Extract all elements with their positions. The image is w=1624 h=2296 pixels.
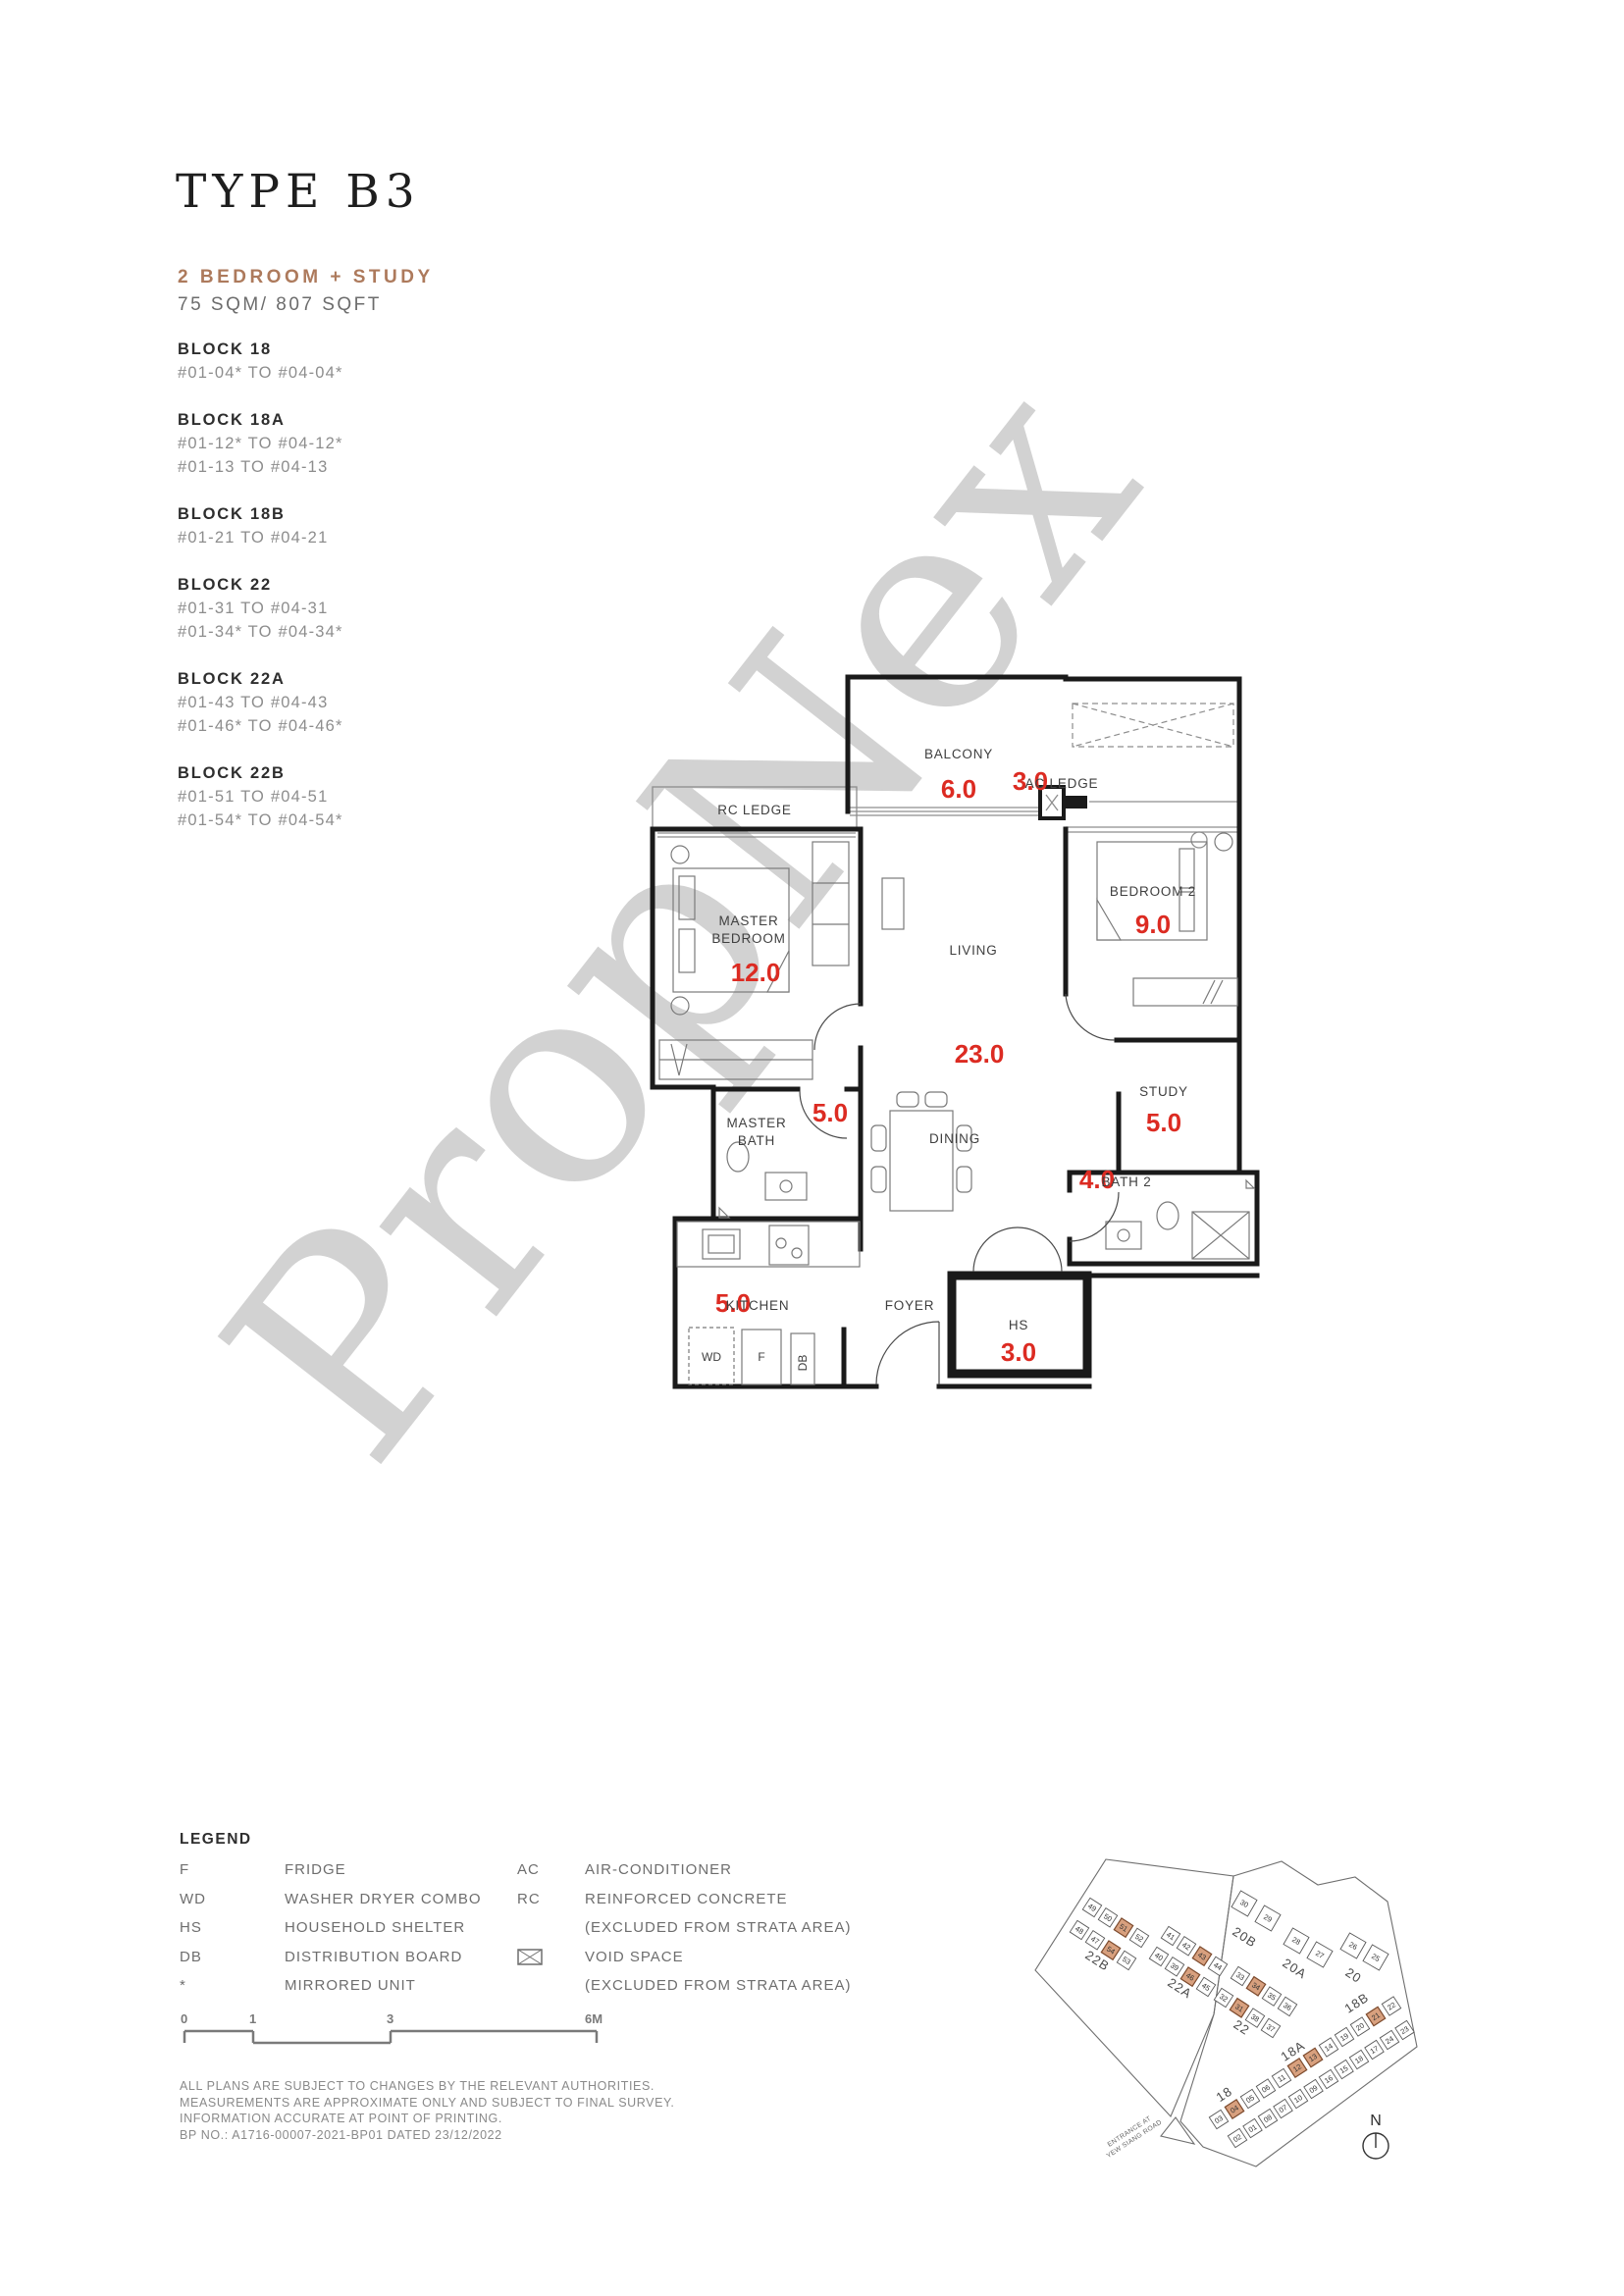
- site-unit: 03: [1209, 2110, 1228, 2128]
- site-unit: 02: [1228, 2128, 1246, 2147]
- scale-bar: 0 1 3 6M: [175, 2009, 626, 2053]
- unit-type-subtitle: 2 BEDROOM + STUDY: [178, 267, 434, 288]
- block-item: BLOCK 22B#01-51 TO #04-51#01-54* TO #04-…: [178, 761, 501, 832]
- site-key-plan: 4950515248475453414243444039464533343536…: [1021, 1854, 1482, 2247]
- site-unit: 50: [1098, 1908, 1117, 1927]
- site-unit: 17: [1365, 2040, 1384, 2059]
- block-item: BLOCK 18A#01-12* TO #04-12*#01-13 TO #04…: [178, 408, 501, 479]
- site-unit: 28: [1283, 1928, 1309, 1954]
- disclaimer-line: BP NO.: A1716-00007-2021-BP01 DATED 23/1…: [180, 2127, 674, 2144]
- site-unit: 44: [1208, 1957, 1227, 1975]
- site-unit: 14: [1319, 2038, 1337, 2057]
- site-unit: 53: [1117, 1951, 1135, 1969]
- legend-symbol: AC: [517, 1855, 585, 1885]
- appliances: WD F DB: [689, 1328, 814, 1384]
- block-range: #01-46* TO #04-46*: [178, 714, 501, 738]
- legend-desc: (EXCLUDED FROM STRATA AREA): [585, 1971, 909, 2001]
- site-unit: 18: [1349, 2050, 1368, 2068]
- wd-label: WD: [702, 1350, 721, 1364]
- disclaimer-line: MEASUREMENTS ARE APPROXIMATE ONLY AND SU…: [180, 2095, 674, 2112]
- block-range: #01-04* TO #04-04*: [178, 361, 501, 385]
- block-item: BLOCK 22A#01-43 TO #04-43#01-46* TO #04-…: [178, 667, 501, 738]
- site-unit: 33: [1231, 1966, 1249, 1985]
- site-unit: 49: [1082, 1898, 1101, 1916]
- room-label-balcony: BALCONY: [924, 747, 993, 761]
- disclaimer: ALL PLANS ARE SUBJECT TO CHANGES BY THE …: [180, 2078, 674, 2143]
- site-unit: 09: [1304, 2079, 1323, 2098]
- legend: LEGEND F FRIDGE AC AIR-CONDITIONER WD WA…: [180, 1831, 909, 2001]
- block-range: #01-13 TO #04-13: [178, 455, 501, 479]
- area-master-bedroom: 12.0: [731, 958, 781, 987]
- room-label-master-bath-1: MASTER: [726, 1116, 786, 1130]
- site-unit: 40: [1149, 1947, 1168, 1965]
- block-name: BLOCK 18A: [178, 408, 501, 432]
- room-label-rc-ledge: RC LEDGE: [717, 803, 791, 817]
- legend-symbol: WD: [180, 1885, 285, 1914]
- area-master-bath: 5.0: [812, 1098, 848, 1127]
- room-label-living: LIVING: [949, 943, 997, 958]
- area-hs: 3.0: [1001, 1337, 1036, 1367]
- block-range: #01-31 TO #04-31: [178, 597, 501, 620]
- fridge-label: F: [758, 1350, 764, 1364]
- legend-title: LEGEND: [180, 1831, 909, 1849]
- block-list: BLOCK 18#01-04* TO #04-04* BLOCK 18A#01-…: [178, 338, 501, 856]
- site-unit: 24: [1380, 2030, 1398, 2049]
- legend-symbol: *: [180, 1971, 285, 2001]
- site-block-label: 18A: [1279, 2038, 1308, 2064]
- site-unit: 22: [1382, 1997, 1400, 2015]
- site-block-label: 18: [1214, 2083, 1235, 2105]
- site-unit: 15: [1335, 2060, 1353, 2078]
- site-unit: 06: [1256, 2079, 1275, 2098]
- scale-tick-6m: 6M: [585, 2011, 602, 2026]
- room-label-ac-ledge: AC LEDGE: [1025, 776, 1099, 791]
- room-label-dining: DINING: [929, 1131, 980, 1146]
- legend-symbol: HS: [180, 1913, 285, 1943]
- room-label-bath2: BATH 2: [1101, 1174, 1151, 1189]
- legend-symbol: DB: [180, 1943, 285, 1972]
- legend-desc: DISTRIBUTION BOARD: [285, 1943, 517, 1972]
- site-unit: 01: [1243, 2118, 1262, 2137]
- block-range: #01-54* TO #04-54*: [178, 809, 501, 832]
- site-unit: 19: [1335, 2027, 1353, 2046]
- site-unit: 41: [1161, 1926, 1179, 1945]
- block-range: #01-43 TO #04-43: [178, 691, 501, 714]
- room-label-hs: HS: [1009, 1318, 1028, 1332]
- area-balcony: 6.0: [941, 774, 976, 804]
- site-unit: 10: [1288, 2089, 1307, 2108]
- disclaimer-line: ALL PLANS ARE SUBJECT TO CHANGES BY THE …: [180, 2078, 674, 2095]
- legend-desc: HOUSEHOLD SHELTER: [285, 1913, 517, 1943]
- legend-desc: AIR-CONDITIONER: [585, 1855, 909, 1885]
- room-label-master-bedroom-2: BEDROOM: [711, 931, 785, 946]
- block-range: #01-51 TO #04-51: [178, 785, 501, 809]
- site-block-label: 20A: [1280, 1956, 1309, 1982]
- void-space-icon: [517, 1943, 585, 1972]
- room-label-foyer: FOYER: [885, 1298, 935, 1313]
- site-block-label: 20B: [1230, 1924, 1259, 1951]
- site-unit: 48: [1070, 1920, 1088, 1939]
- north-arrow-icon: N: [1363, 2113, 1388, 2159]
- site-unit: 47: [1085, 1931, 1104, 1950]
- legend-desc: REINFORCED CONCRETE: [585, 1885, 909, 1914]
- block-name: BLOCK 18: [178, 338, 501, 361]
- site-unit: 27: [1307, 1942, 1333, 1967]
- site-unit: 23: [1395, 2020, 1414, 2039]
- site-unit: 42: [1177, 1937, 1195, 1956]
- site-unit: 25: [1363, 1945, 1388, 1970]
- site-unit: 35: [1262, 1987, 1281, 2006]
- room-label-kitchen: KITCHEN: [726, 1298, 790, 1313]
- site-unit: 21: [1366, 2007, 1385, 2025]
- site-unit: 04: [1225, 2100, 1243, 2118]
- site-unit: 34: [1246, 1977, 1265, 1996]
- site-unit: 20: [1350, 2017, 1369, 2036]
- area-bedroom2: 9.0: [1135, 910, 1171, 939]
- site-unit: 30: [1231, 1891, 1257, 1916]
- site-unit: 08: [1258, 2109, 1277, 2127]
- site-block-label: 18B: [1342, 1990, 1372, 2016]
- block-name: BLOCK 22B: [178, 761, 501, 785]
- block-item: BLOCK 18B#01-21 TO #04-21: [178, 502, 501, 549]
- page-title: TYPE B3: [176, 165, 421, 219]
- legend-desc: MIRRORED UNIT: [285, 1971, 517, 2001]
- area-study: 5.0: [1146, 1108, 1181, 1137]
- site-unit: 11: [1272, 2068, 1290, 2087]
- disclaimer-line: INFORMATION ACCURATE AT POINT OF PRINTIN…: [180, 2111, 674, 2127]
- site-unit: 37: [1261, 2018, 1280, 2037]
- block-range: #01-34* TO #04-34*: [178, 620, 501, 644]
- site-block-label: 20: [1342, 1964, 1364, 1986]
- block-item: BLOCK 22#01-31 TO #04-31#01-34* TO #04-3…: [178, 573, 501, 644]
- site-unit: 29: [1255, 1905, 1281, 1931]
- site-unit: 16: [1319, 2069, 1337, 2088]
- site-unit: 26: [1340, 1933, 1366, 1958]
- site-unit: 39: [1165, 1957, 1183, 1976]
- legend-desc: VOID SPACE: [585, 1943, 909, 1972]
- entrance-arrow-icon: ENTRANCE AT YEW SIANG ROAD: [1101, 2112, 1194, 2160]
- room-label-bedroom2: BEDROOM 2: [1110, 884, 1196, 899]
- legend-symbol: RC: [517, 1885, 585, 1914]
- scale-tick-0: 0: [181, 2011, 187, 2026]
- site-unit: 51: [1114, 1918, 1132, 1937]
- room-label-study: STUDY: [1139, 1084, 1188, 1099]
- db-label: DB: [796, 1355, 810, 1372]
- site-unit: 12: [1287, 2059, 1306, 2077]
- block-name: BLOCK 22A: [178, 667, 501, 691]
- site-unit: 45: [1196, 1977, 1215, 1996]
- unit-area: 75 SQM/ 807 SQFT: [178, 294, 382, 316]
- block-range: #01-21 TO #04-21: [178, 526, 501, 549]
- block-name: BLOCK 22: [178, 573, 501, 597]
- legend-desc: WASHER DRYER COMBO: [285, 1885, 517, 1914]
- site-unit: 07: [1274, 2099, 1292, 2117]
- legend-symbol: F: [180, 1855, 285, 1885]
- block-range: #01-12* TO #04-12*: [178, 432, 501, 455]
- site-unit: 43: [1192, 1947, 1211, 1965]
- block-item: BLOCK 18#01-04* TO #04-04*: [178, 338, 501, 385]
- scale-tick-3: 3: [387, 2011, 393, 2026]
- site-unit: 52: [1129, 1928, 1148, 1947]
- legend-desc: (EXCLUDED FROM STRATA AREA): [585, 1913, 909, 1943]
- floorplan-page: TYPE B3 2 BEDROOM + STUDY 75 SQM/ 807 SQ…: [0, 0, 1624, 2296]
- area-living-dining: 23.0: [955, 1039, 1005, 1069]
- north-label: N: [1370, 2113, 1382, 2129]
- room-label-master-bedroom-1: MASTER: [718, 913, 778, 928]
- room-label-master-bath-2: BATH: [738, 1133, 775, 1148]
- site-unit: 31: [1230, 1999, 1248, 2017]
- legend-desc: FRIDGE: [285, 1855, 517, 1885]
- legend-symbol: [517, 1913, 585, 1943]
- scale-tick-1: 1: [249, 2011, 256, 2026]
- legend-symbol: [517, 1971, 585, 2001]
- site-unit: 36: [1278, 1997, 1296, 2015]
- floor-plan: WD F DB RC LEDGE BALCONY 6.0 3.0 AC LEDG…: [618, 545, 1285, 1428]
- site-unit: 05: [1240, 2089, 1259, 2108]
- block-name: BLOCK 18B: [178, 502, 501, 526]
